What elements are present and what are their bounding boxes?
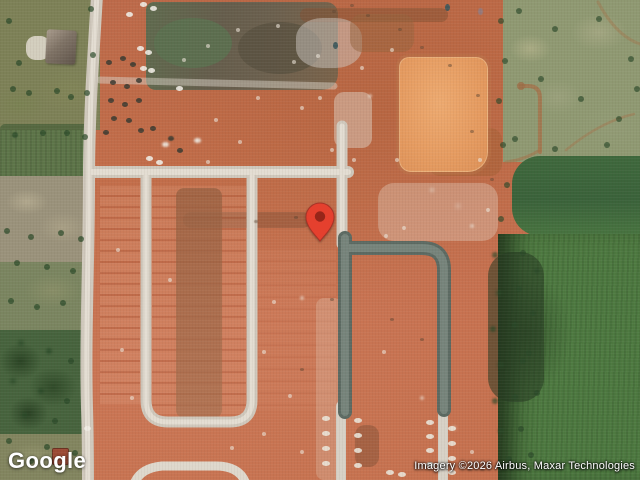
trail-right-field: [506, 150, 540, 162]
satellite-map-canvas[interactable]: Google Imagery ©2026 Airbus, Maxar Techn…: [0, 0, 640, 480]
trail-right-field: [566, 114, 634, 150]
road-dark-loop: [345, 238, 444, 412]
google-logo[interactable]: Google: [8, 448, 86, 474]
road-bottom-arc: [134, 466, 246, 480]
road-u-loop: [146, 176, 252, 422]
trail-right-field: [521, 86, 540, 152]
map-pin-icon[interactable]: [305, 202, 335, 242]
imagery-attribution: Imagery ©2026 Airbus, Maxar Technologies: [414, 460, 635, 472]
trail-right-field: [598, 2, 640, 44]
concrete-driveway-pads: [0, 0, 8, 5]
road-dirt-track: [100, 80, 334, 86]
